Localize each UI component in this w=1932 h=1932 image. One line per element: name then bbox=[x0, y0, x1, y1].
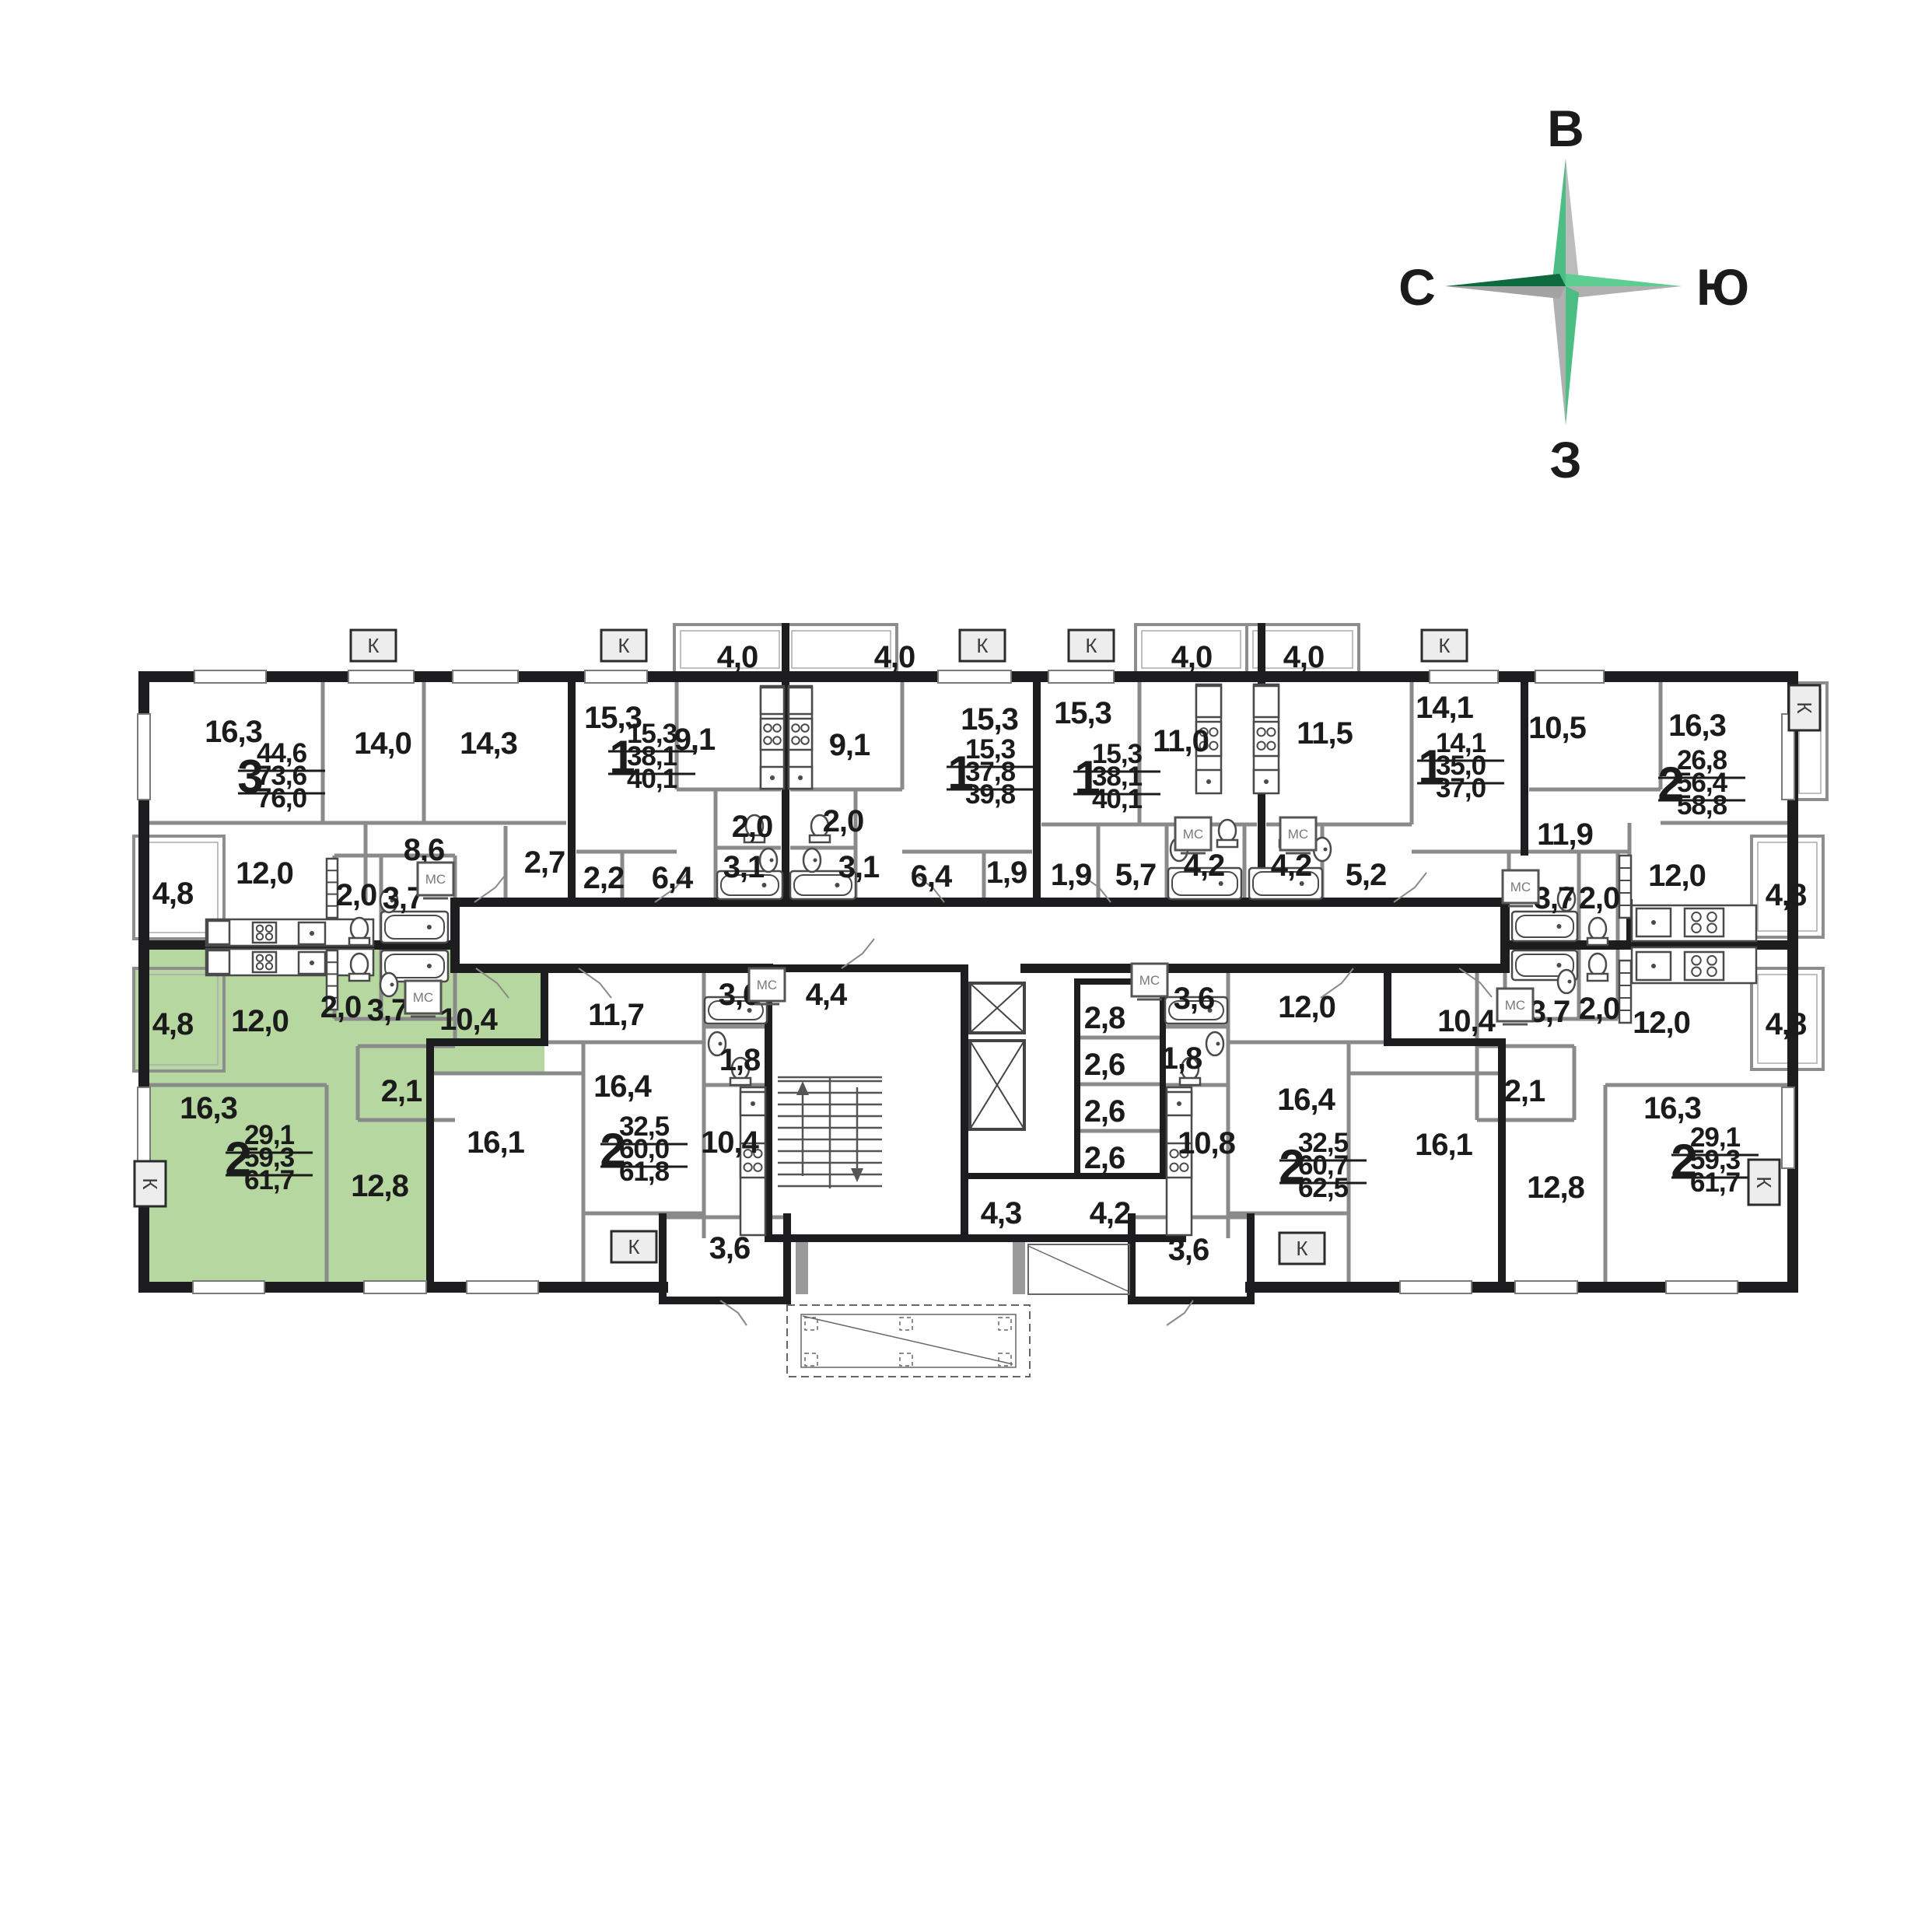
washing-machine-label: МС bbox=[1288, 827, 1308, 842]
sink-drain bbox=[1177, 1101, 1181, 1106]
room-area-label: 3,7 bbox=[367, 993, 408, 1027]
room-area-label: 4,8 bbox=[152, 877, 194, 911]
washing-machine-box: МС bbox=[418, 863, 453, 898]
elevator-shaft bbox=[970, 983, 1024, 1033]
ventilation-box: К bbox=[1279, 1233, 1325, 1264]
sink-drain bbox=[310, 961, 314, 965]
apartment-area-value: 61,7 bbox=[1690, 1167, 1740, 1198]
tub-drain bbox=[427, 925, 432, 929]
window bbox=[138, 1087, 150, 1168]
window bbox=[138, 714, 150, 800]
ventilation-box-label: К bbox=[1296, 1237, 1307, 1260]
basin-icon bbox=[1558, 970, 1575, 993]
room-area-label: 5,7 bbox=[1115, 858, 1157, 892]
window bbox=[1666, 1281, 1738, 1293]
window bbox=[1535, 670, 1604, 683]
room-area-label: 2,0 bbox=[336, 878, 377, 912]
sink-drain bbox=[751, 1101, 755, 1106]
room-area-label: 16,1 bbox=[1415, 1128, 1473, 1162]
stove-frame bbox=[1685, 908, 1724, 936]
kitchen-sink-icon bbox=[299, 952, 325, 974]
ventilation-box: К bbox=[135, 1161, 166, 1206]
ventilation-box: К bbox=[1422, 630, 1467, 661]
apartment-summary: 114,135,037,0 bbox=[1417, 728, 1504, 803]
kitchen-sink-icon bbox=[1254, 770, 1279, 793]
window bbox=[467, 1281, 538, 1293]
room-area-label: 10,4 bbox=[439, 1003, 499, 1037]
room-area-label: 12,0 bbox=[1278, 990, 1335, 1024]
room-area-label: 2,0 bbox=[1579, 881, 1620, 915]
kitchen-sink-icon bbox=[1196, 770, 1221, 793]
ventilation-box: К bbox=[601, 630, 646, 661]
toilet-icon bbox=[1217, 820, 1237, 847]
room-area-label: 11,0 bbox=[1153, 724, 1209, 758]
room-area-label: 16,4 bbox=[593, 1069, 653, 1104]
room-area-label: 11,5 bbox=[1297, 716, 1353, 751]
room-area-label: 15,3 bbox=[961, 702, 1018, 737]
apartment-area-value: 76,0 bbox=[257, 783, 307, 814]
room-area-label: 1,9 bbox=[1051, 858, 1092, 892]
room-area-label: 6,4 bbox=[911, 859, 953, 894]
window bbox=[1400, 1281, 1472, 1293]
room-area-label: 10,4 bbox=[1437, 1004, 1496, 1038]
ventilation-box-label: К bbox=[367, 634, 379, 657]
room-area-label: 14,1 bbox=[1416, 691, 1474, 725]
compass-arm bbox=[1552, 158, 1566, 286]
kitchen-sink-icon bbox=[1636, 908, 1671, 936]
room-area-label: 4,0 bbox=[1283, 640, 1325, 674]
window bbox=[453, 670, 518, 683]
bathtub-icon bbox=[381, 912, 448, 943]
sink-drain bbox=[1264, 779, 1269, 784]
room-area-label: 2,0 bbox=[320, 990, 362, 1024]
stove-icon bbox=[761, 719, 784, 750]
canopy-column-mark bbox=[805, 1353, 817, 1366]
stove-frame bbox=[1685, 952, 1724, 980]
kitchen-sink-icon bbox=[299, 922, 325, 944]
room-area-label: 4,8 bbox=[1766, 1007, 1807, 1041]
stove-icon bbox=[253, 952, 276, 972]
kitchen-sink-icon bbox=[1636, 952, 1671, 980]
apartment-area-value: 58,8 bbox=[1677, 790, 1727, 821]
room-area-label: 2,0 bbox=[823, 804, 864, 838]
core-area-label: 4,2 bbox=[1090, 1196, 1131, 1230]
toilet-icon bbox=[349, 954, 369, 981]
room-area-label: 12,0 bbox=[1633, 1006, 1690, 1040]
washing-machine-label: МС bbox=[413, 990, 433, 1005]
washing-machine-box: МС bbox=[405, 981, 441, 1017]
apartment-summary: 232,560,061,8 bbox=[600, 1111, 688, 1187]
compass-arm bbox=[1552, 286, 1566, 425]
ventilation-box-label: К bbox=[628, 1235, 639, 1258]
ventilation-box-label: К bbox=[1793, 702, 1816, 713]
room-area-label: 11,7 bbox=[588, 998, 644, 1032]
room-area-label: 14,3 bbox=[460, 726, 517, 761]
ventilation-box-label: К bbox=[1752, 1176, 1776, 1188]
ventilation-box-label: К bbox=[1438, 634, 1450, 657]
rail-frame bbox=[1619, 856, 1631, 918]
toilet-bowl bbox=[1589, 918, 1606, 940]
ventilation-box: К bbox=[1789, 685, 1820, 730]
stove-icon bbox=[1685, 952, 1724, 980]
toilet-tank bbox=[1587, 938, 1608, 945]
ramp-diagonal bbox=[1028, 1246, 1128, 1291]
washing-machine-label: МС bbox=[1139, 973, 1160, 988]
ventilation-box-label: К bbox=[138, 1178, 162, 1189]
washing-machine-label: МС bbox=[1510, 880, 1531, 894]
washing-machine-box: МС bbox=[1280, 817, 1316, 853]
window bbox=[348, 670, 414, 683]
fridge-icon bbox=[208, 921, 229, 944]
basin-tap bbox=[1568, 980, 1572, 984]
building-core bbox=[778, 983, 1025, 1294]
towel-rail-icon bbox=[1619, 856, 1631, 918]
room-area-label: 15,3 bbox=[1054, 696, 1111, 730]
apartment-summary: 115,337,839,8 bbox=[947, 734, 1034, 810]
tub-drain bbox=[1556, 924, 1561, 929]
room-area-label: 4,0 bbox=[1171, 640, 1213, 674]
window bbox=[193, 1281, 264, 1293]
room-area-label: 16,4 bbox=[1277, 1083, 1336, 1117]
washing-machine-box: МС bbox=[1503, 870, 1538, 906]
sink-drain bbox=[1206, 779, 1211, 784]
window bbox=[938, 670, 1011, 683]
room-area-label: 2,0 bbox=[1579, 992, 1620, 1026]
toilet-bowl bbox=[1589, 954, 1606, 975]
washing-machine-box: МС bbox=[1175, 817, 1211, 853]
room-area-label: 3,6 bbox=[1174, 982, 1215, 1016]
ventilation-box: К bbox=[1069, 630, 1114, 661]
toilet-icon bbox=[349, 918, 369, 945]
room-area-label: 3,1 bbox=[723, 850, 765, 884]
room-area-label: 6,4 bbox=[652, 861, 694, 895]
room-area-label: 3,7 bbox=[1534, 881, 1575, 915]
compass-letter-left: С bbox=[1398, 258, 1436, 316]
room-area-label: 1,9 bbox=[986, 856, 1027, 890]
ventilation-box-label: К bbox=[1085, 634, 1097, 657]
toilet-icon bbox=[1587, 918, 1608, 945]
kitchen-sink-icon bbox=[1167, 1092, 1192, 1115]
room-area-label: 14,0 bbox=[354, 726, 411, 761]
toilet-bowl bbox=[1219, 820, 1236, 842]
ventilation-box: К bbox=[611, 1231, 656, 1262]
tub-drain bbox=[1556, 963, 1561, 968]
ventilation-box-label: К bbox=[976, 634, 988, 657]
core-area-label: 3,6 bbox=[1168, 1233, 1209, 1267]
core-area-label: 2,6 bbox=[1084, 1094, 1125, 1129]
room-area-label: 3,1 bbox=[838, 850, 880, 884]
room-area-label: 2,1 bbox=[381, 1074, 422, 1108]
room-area-label: 10,5 bbox=[1528, 711, 1587, 745]
room-area-label: 4,8 bbox=[152, 1007, 194, 1041]
apartment-area-value: 62,5 bbox=[1298, 1173, 1349, 1203]
room-area-label: 2,0 bbox=[732, 810, 773, 844]
compass-arm bbox=[1445, 286, 1566, 299]
apartment-summary: 226,856,458,8 bbox=[1657, 745, 1745, 821]
room-area-label: 1,8 bbox=[1161, 1041, 1202, 1076]
compass-letter-bottom: З bbox=[1549, 431, 1581, 488]
kitchen-sink-icon bbox=[789, 767, 812, 789]
stair-arrowhead-up bbox=[796, 1081, 809, 1095]
towel-rail-icon bbox=[1619, 961, 1631, 1023]
bathtub-icon bbox=[1512, 912, 1577, 941]
core-area-label: 2,6 bbox=[1084, 1141, 1125, 1175]
apartment-area-value: 39,8 bbox=[965, 779, 1016, 810]
toilet-icon bbox=[1587, 954, 1608, 981]
room-area-label: 2,2 bbox=[583, 861, 625, 895]
washing-machine-label: МС bbox=[1183, 827, 1203, 842]
core-area-label: 2,8 bbox=[1084, 1001, 1125, 1035]
stove-icon bbox=[253, 922, 276, 943]
canopy-column-mark bbox=[900, 1353, 912, 1366]
stove-frame bbox=[789, 719, 812, 750]
core-area-label: 2,6 bbox=[1084, 1048, 1125, 1082]
canopy-inner-outline bbox=[801, 1314, 1016, 1367]
toilet-tank bbox=[1217, 840, 1237, 847]
basin-bowl bbox=[1558, 970, 1575, 993]
room-area-label: 1,8 bbox=[719, 1043, 761, 1077]
room-area-label: 2,1 bbox=[1504, 1074, 1545, 1108]
stove-frame bbox=[1254, 722, 1279, 756]
room-area-label: 12,0 bbox=[236, 856, 293, 891]
apartment-summary: 115,338,140,1 bbox=[1073, 739, 1160, 814]
fridge-icon bbox=[208, 950, 229, 974]
core-area-label: 4,4 bbox=[806, 978, 848, 1012]
door-leaf bbox=[842, 939, 874, 968]
basin-tap bbox=[814, 859, 817, 863]
room-area-label: 12,8 bbox=[1527, 1171, 1585, 1205]
basin-tap bbox=[1216, 1042, 1220, 1046]
window bbox=[1515, 1281, 1577, 1293]
washing-machine-box: МС bbox=[749, 968, 785, 1004]
room-area-label: 9,1 bbox=[829, 728, 870, 762]
room-area-label: 10,8 bbox=[1178, 1126, 1236, 1160]
stove-frame bbox=[761, 719, 784, 750]
apartment-area-value: 40,1 bbox=[627, 764, 677, 794]
kitchen-sink-icon bbox=[761, 767, 784, 789]
room-area-label: 4,8 bbox=[1766, 878, 1807, 912]
sink-drain bbox=[1651, 920, 1656, 925]
washing-machine-label: МС bbox=[425, 872, 446, 887]
room-area-label: 12,0 bbox=[1648, 859, 1706, 893]
compass-arm bbox=[1566, 286, 1579, 425]
tub-drain bbox=[427, 964, 432, 968]
stove-icon bbox=[789, 719, 812, 750]
apartment-area-value: 61,8 bbox=[619, 1157, 670, 1187]
ventilation-box: К bbox=[351, 630, 396, 661]
compass-arm bbox=[1566, 286, 1682, 299]
sink-drain bbox=[798, 775, 803, 780]
window bbox=[1782, 1087, 1794, 1168]
kitchen-sink-icon bbox=[740, 1092, 765, 1115]
compass-letter-right: Ю bbox=[1696, 258, 1749, 316]
compass-letter-top: В bbox=[1547, 100, 1584, 157]
window bbox=[585, 670, 647, 683]
room-area-label: 12,0 bbox=[231, 1004, 289, 1038]
floor-plan-page: 16,314,014,312,08,62,03,72,74,8344,673,6… bbox=[0, 0, 1932, 1932]
apartment-summary: 344,673,676,0 bbox=[237, 738, 325, 814]
basin-tap bbox=[770, 859, 774, 863]
fridge-icon bbox=[1196, 686, 1221, 717]
porch-pillar bbox=[796, 1238, 808, 1294]
core-area-label: 4,3 bbox=[981, 1196, 1022, 1230]
sink-drain bbox=[770, 775, 775, 780]
room-area-label: 16,3 bbox=[205, 715, 262, 749]
washing-machine-label: МС bbox=[757, 978, 777, 992]
room-area-label: 2,7 bbox=[524, 845, 565, 880]
washing-machine-box: МС bbox=[1497, 989, 1533, 1024]
ventilation-box: К bbox=[960, 630, 1005, 661]
fridge-icon bbox=[1254, 686, 1279, 717]
toilet-tank bbox=[349, 938, 369, 945]
compass-arm bbox=[1566, 158, 1579, 286]
room-area-label: 16,3 bbox=[180, 1091, 237, 1125]
toilet-tank bbox=[349, 974, 369, 981]
toilet-bowl bbox=[351, 918, 368, 940]
window bbox=[194, 670, 266, 683]
toilet-tank bbox=[1180, 1078, 1200, 1085]
apartment-summary: 232,560,762,5 bbox=[1279, 1128, 1367, 1203]
basin-tap bbox=[1324, 848, 1328, 852]
kitchen-counter bbox=[206, 949, 373, 975]
room-area-label: 16,3 bbox=[1668, 709, 1726, 743]
room-area-label: 16,3 bbox=[1643, 1091, 1701, 1125]
compass-arm bbox=[1445, 274, 1566, 286]
sink-drain bbox=[1651, 964, 1656, 968]
basin-icon bbox=[1206, 1032, 1223, 1055]
room-area-label: 4,0 bbox=[717, 640, 758, 674]
apartment-area-value: 61,7 bbox=[244, 1165, 294, 1195]
core-area-label: 3,6 bbox=[709, 1231, 751, 1265]
room-area-label: 5,2 bbox=[1346, 858, 1387, 892]
basin-bowl bbox=[803, 849, 821, 872]
compass-rose: В Ю З С bbox=[1398, 100, 1749, 488]
room-area-label: 3,7 bbox=[1529, 995, 1570, 1029]
stove-icon bbox=[1685, 908, 1724, 936]
basin-bowl bbox=[1206, 1032, 1223, 1055]
ventilation-box: К bbox=[1748, 1160, 1780, 1205]
room-area-label: 4,0 bbox=[874, 640, 915, 674]
canopy-column-mark bbox=[999, 1318, 1011, 1330]
window bbox=[1048, 670, 1114, 683]
stove-frame bbox=[253, 952, 276, 972]
apartment-area-value: 37,0 bbox=[1436, 773, 1486, 803]
canopy-diagonal bbox=[803, 1316, 1013, 1364]
washing-machine-label: МС bbox=[1505, 998, 1525, 1013]
entrance-canopy bbox=[787, 1244, 1129, 1377]
washing-machine-box: МС bbox=[1132, 964, 1167, 999]
window bbox=[1430, 670, 1498, 683]
basin-icon bbox=[803, 849, 821, 872]
compass-arm bbox=[1566, 274, 1682, 286]
basin-tap bbox=[390, 983, 394, 987]
room-area-label: 16,1 bbox=[467, 1125, 525, 1160]
toilet-tank bbox=[1587, 974, 1608, 981]
toilet-tank bbox=[730, 1078, 751, 1085]
fridge-icon bbox=[789, 688, 812, 714]
stove-icon bbox=[1254, 722, 1279, 756]
canopy-column-mark bbox=[900, 1318, 912, 1330]
sink-drain bbox=[310, 931, 314, 936]
rail-frame bbox=[1619, 961, 1631, 1023]
elevator-shaft bbox=[970, 1041, 1024, 1129]
staircase bbox=[778, 1077, 882, 1188]
stove-frame bbox=[253, 922, 276, 943]
toilet-bowl bbox=[351, 954, 368, 975]
fridge-icon bbox=[761, 688, 784, 714]
apartment-summary: 229,159,361,7 bbox=[1671, 1122, 1759, 1198]
window bbox=[364, 1281, 426, 1293]
room-area-label: 11,9 bbox=[1537, 817, 1593, 852]
room-area-label: 12,8 bbox=[351, 1169, 409, 1203]
room-area-label: 10,4 bbox=[701, 1125, 760, 1160]
apartment-area-value: 40,1 bbox=[1092, 784, 1143, 814]
porch-pillar bbox=[1013, 1238, 1025, 1294]
ventilation-box-label: К bbox=[618, 634, 629, 657]
